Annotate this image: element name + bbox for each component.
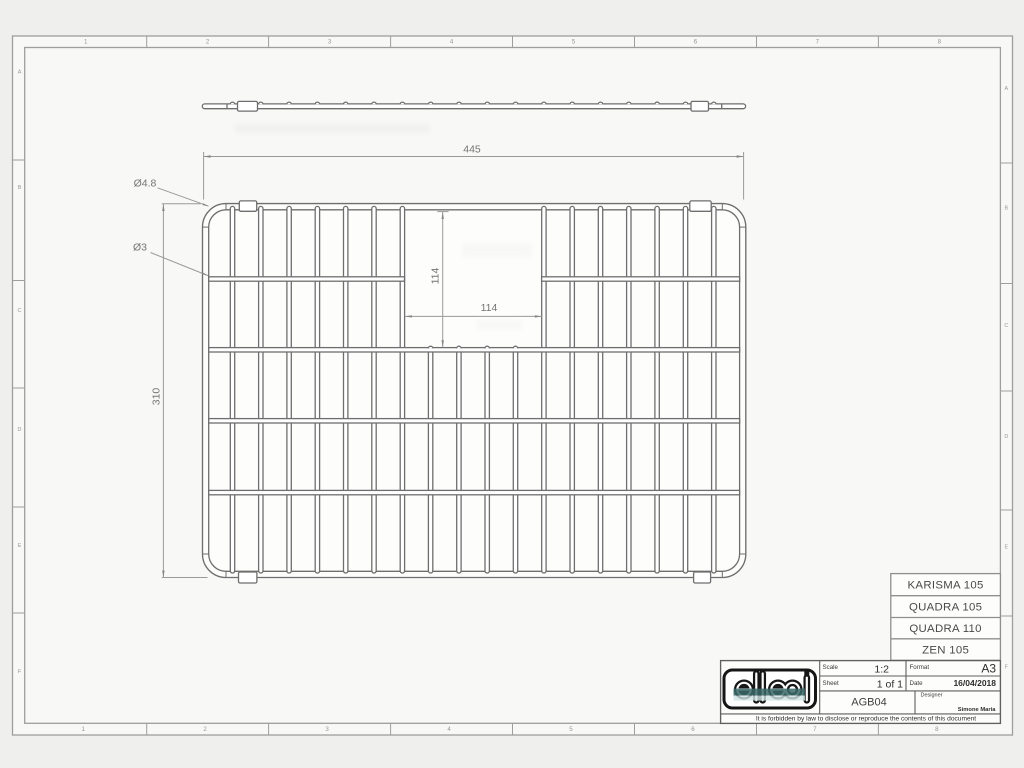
svg-text:Ø3: Ø3 <box>133 242 147 254</box>
svg-text:B: B <box>1004 206 1008 212</box>
svg-text:KARISMA 105: KARISMA 105 <box>908 580 984 592</box>
svg-text:Date: Date <box>910 680 924 687</box>
svg-text:Sheet: Sheet <box>823 680 839 687</box>
svg-text:Simone Maria: Simone Maria <box>958 707 996 713</box>
svg-text:A: A <box>1004 86 1008 92</box>
svg-text:Designer: Designer <box>921 693 943 699</box>
svg-text:5: 5 <box>569 726 573 733</box>
svg-text:4: 4 <box>447 726 451 733</box>
svg-text:16/04/2018: 16/04/2018 <box>953 678 996 688</box>
svg-text:8: 8 <box>935 726 939 733</box>
svg-text:7: 7 <box>813 726 817 733</box>
svg-text:3: 3 <box>325 726 329 733</box>
svg-text:114: 114 <box>481 302 498 314</box>
svg-text:7: 7 <box>816 39 820 46</box>
svg-text:445: 445 <box>463 144 481 156</box>
svg-text:310: 310 <box>151 388 163 406</box>
svg-text:1 of 1: 1 of 1 <box>877 679 903 691</box>
svg-text:It is forbidden by law to disc: It is forbidden by law to disclose or re… <box>756 715 976 722</box>
svg-text:8: 8 <box>938 39 942 46</box>
svg-text:A: A <box>18 70 22 76</box>
svg-text:6: 6 <box>691 726 695 733</box>
svg-text:C: C <box>18 308 22 314</box>
svg-text:ZEN 105: ZEN 105 <box>922 645 969 657</box>
svg-text:Scale: Scale <box>823 664 839 671</box>
svg-text:D: D <box>1004 434 1008 440</box>
svg-text:QUADRA 105: QUADRA 105 <box>909 602 982 614</box>
svg-text:6: 6 <box>694 39 698 46</box>
svg-text:2: 2 <box>206 39 210 46</box>
svg-text:A3: A3 <box>981 662 996 676</box>
svg-text:C: C <box>1004 323 1008 329</box>
svg-text:AGB04: AGB04 <box>851 697 886 709</box>
svg-text:B: B <box>18 185 22 191</box>
svg-text:1:2: 1:2 <box>874 664 889 676</box>
svg-text:Format: Format <box>910 664 930 671</box>
svg-text:2: 2 <box>203 726 207 733</box>
svg-text:Ø4.8: Ø4.8 <box>134 178 157 190</box>
svg-text:E: E <box>1004 545 1008 551</box>
svg-text:114: 114 <box>429 267 441 284</box>
svg-text:5: 5 <box>572 39 576 46</box>
svg-text:QUADRA 110: QUADRA 110 <box>909 623 981 635</box>
svg-text:4: 4 <box>450 39 454 46</box>
svg-text:E: E <box>18 543 22 549</box>
svg-text:1: 1 <box>81 726 85 733</box>
svg-text:D: D <box>18 427 22 433</box>
svg-text:3: 3 <box>328 39 332 46</box>
svg-text:1: 1 <box>84 39 88 46</box>
